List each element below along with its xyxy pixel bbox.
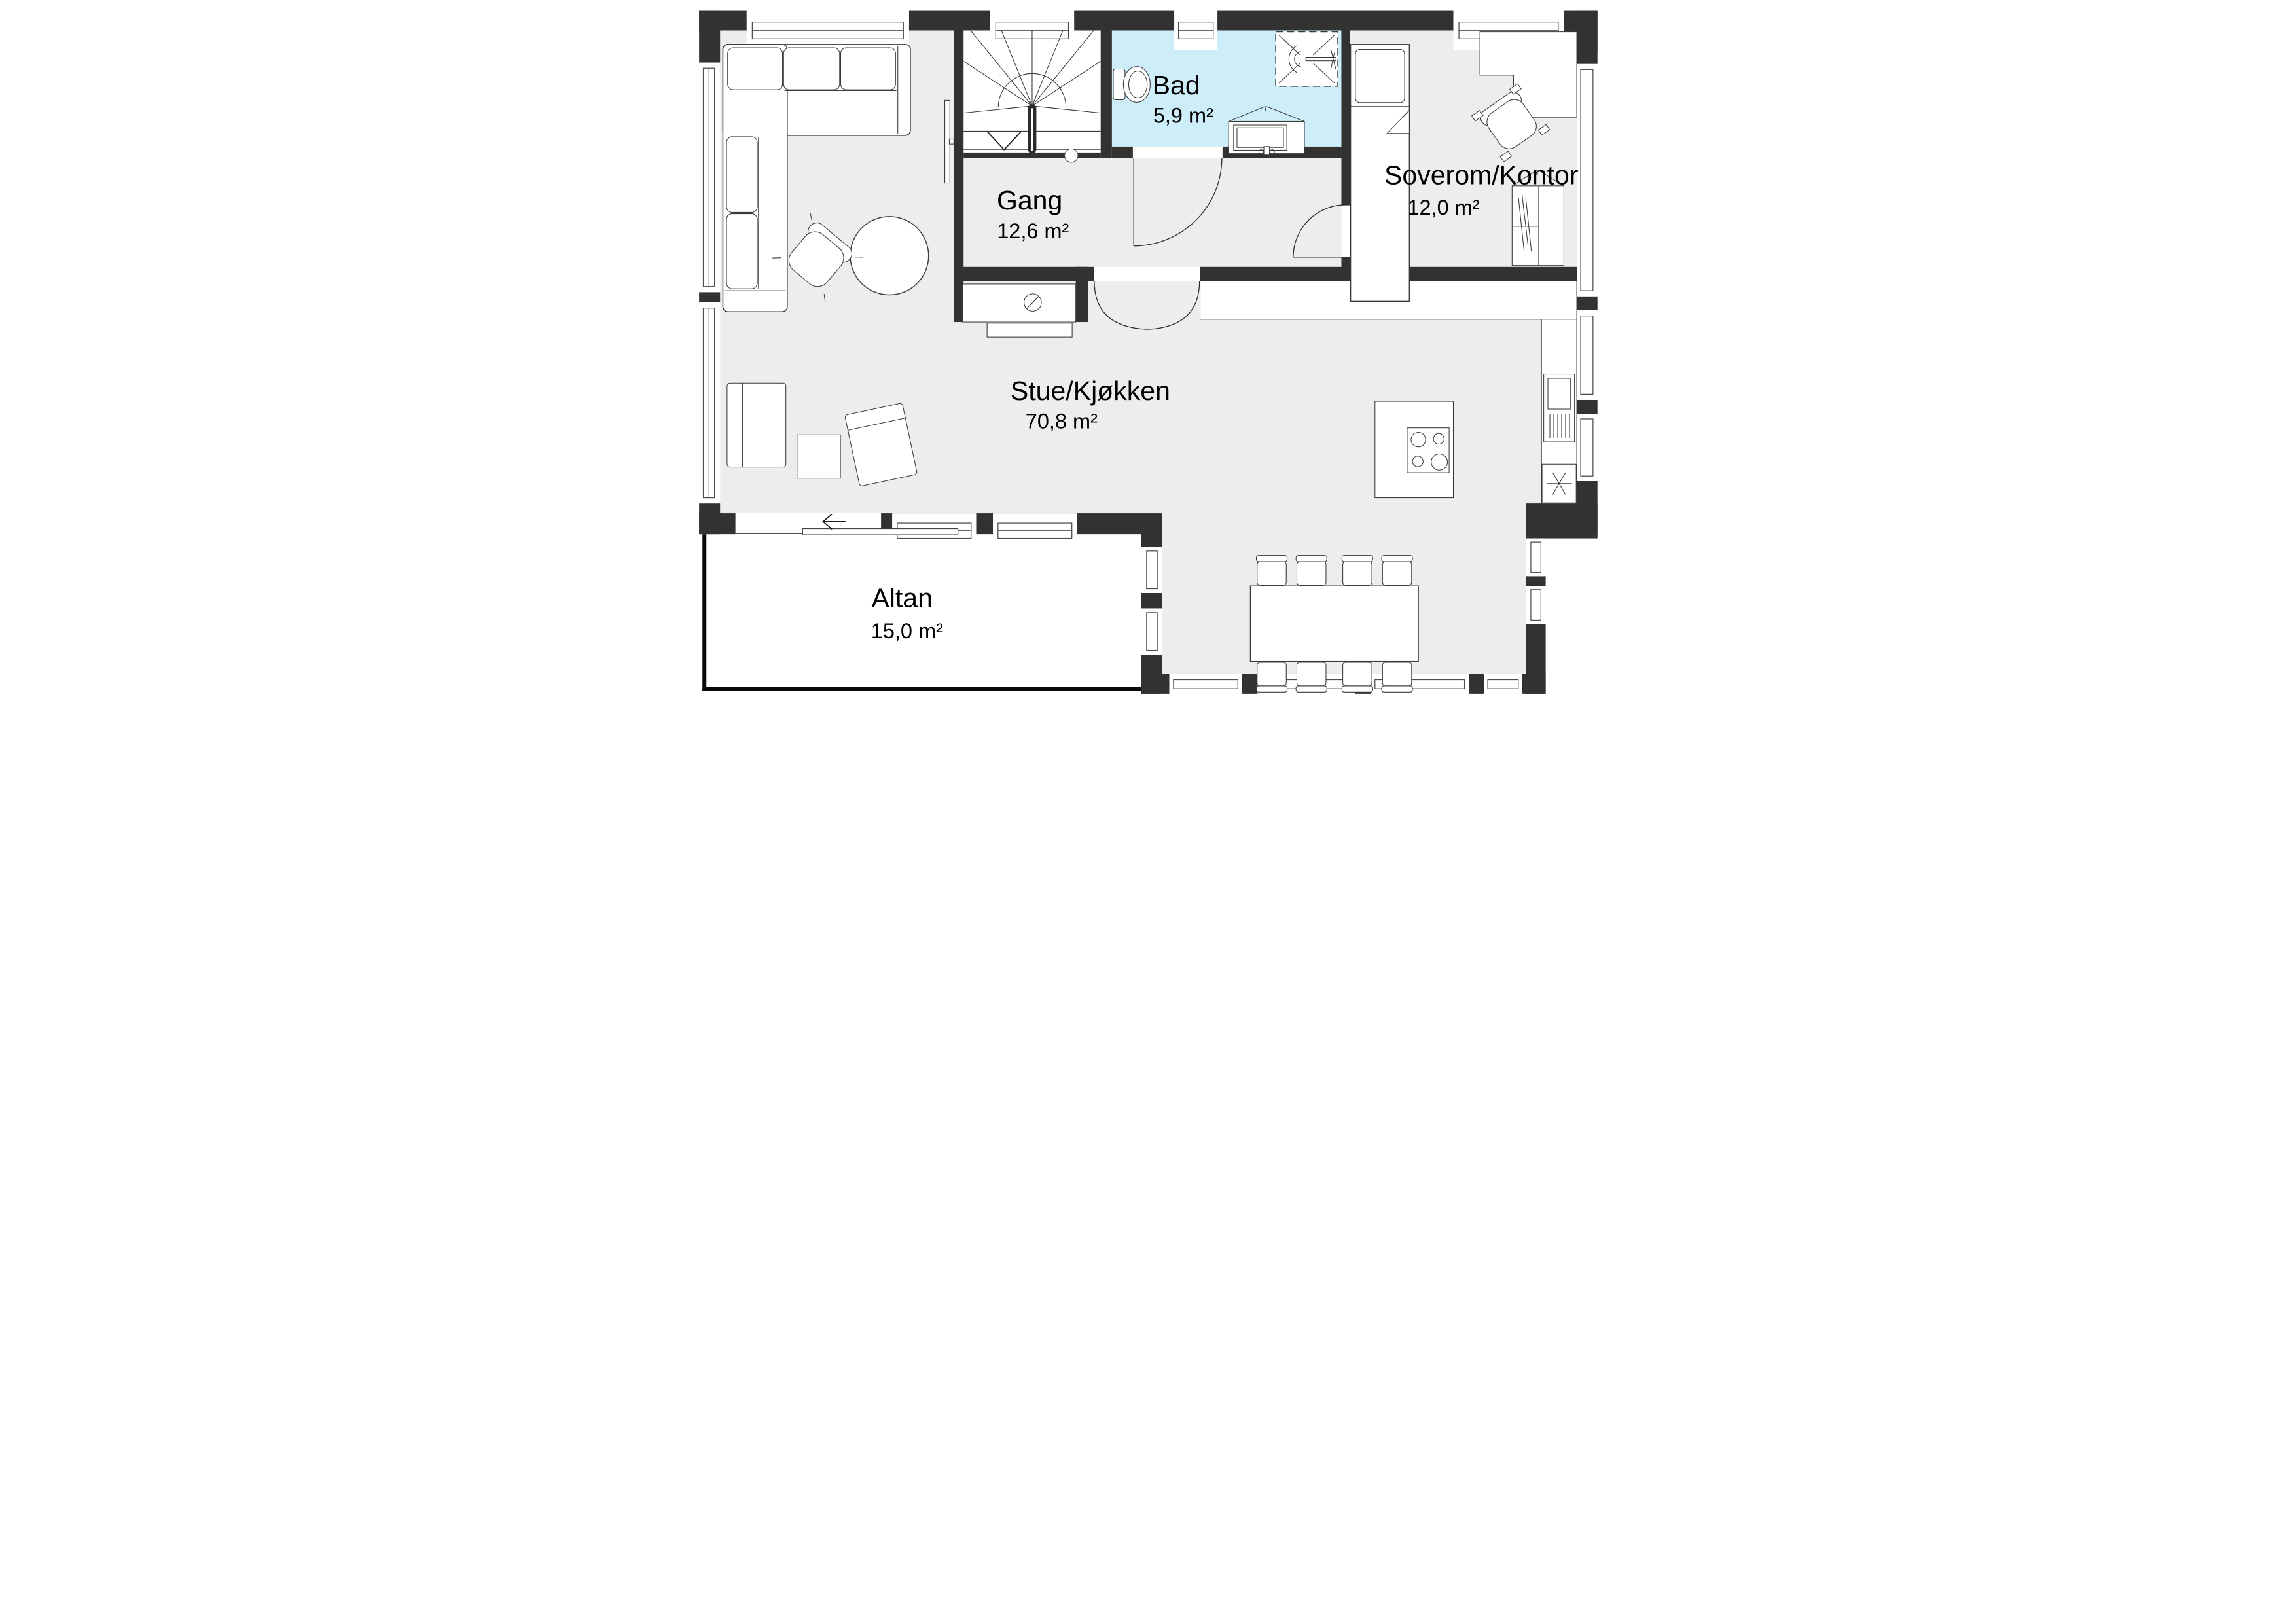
sliding-door-panel: [802, 529, 958, 535]
cooktop-icon: [1407, 428, 1449, 473]
room-label-bad: Bad: [1153, 70, 1200, 100]
window-dining-south-4: [1484, 676, 1522, 693]
window-left-upper: [699, 63, 720, 293]
lounge-chair-left: [727, 383, 786, 467]
fireplace-hearth: [987, 323, 1072, 337]
window-left-lower: [699, 302, 720, 503]
altan-border-bottom: [702, 687, 1141, 691]
wall-stair-right: [1101, 30, 1112, 158]
wall-bath-bedroom: [1341, 30, 1350, 205]
shower: [1276, 32, 1338, 86]
window-dining-west-1: [1143, 547, 1161, 593]
kitchen-island: [1375, 401, 1454, 498]
freezer-icon: [1542, 464, 1576, 503]
coffee-table: [850, 217, 929, 295]
room-area-soverom: 12,0 m²: [1407, 196, 1479, 219]
window-dining-south-1: [1169, 676, 1242, 693]
room-area-altan: 15,0 m²: [871, 619, 943, 643]
dining-table: [1250, 586, 1418, 661]
window-right-kitchen-lower: [1577, 414, 1598, 481]
wall-gang-bottom-left: [954, 267, 1094, 281]
wall-fireplace-jamb: [1076, 267, 1088, 322]
window-right-kitchen-upper: [1577, 310, 1598, 400]
window-dining-west-2: [1143, 608, 1161, 655]
window-top-bathroom: [1174, 11, 1217, 50]
wall-corner-kitchen: [1526, 503, 1598, 538]
toilet: [1113, 67, 1150, 103]
floor-plan-page: Bad 5,9 m² Gang 12,6 m² Soverom/Kontor 1…: [657, 5, 1639, 700]
shower-arm: [1306, 58, 1336, 61]
altan-border-left: [702, 534, 706, 691]
room-area-gang: 12,6 m²: [997, 219, 1069, 243]
room-label-altan: Altan: [871, 583, 933, 613]
side-table: [797, 435, 840, 478]
stair-newel-post: [1065, 149, 1079, 162]
room-label-gang: Gang: [997, 185, 1062, 215]
oven-appliance: [1544, 374, 1575, 442]
room-label-soverom: Soverom/Kontor: [1384, 160, 1578, 190]
room-area-stue: 70,8 m²: [1026, 410, 1098, 433]
window-bottom-living-2: [993, 514, 1077, 547]
room-label-stue: Stue/Kjøkken: [1011, 376, 1170, 406]
wall-stair-bottom: [963, 153, 1101, 158]
window-dining-east-2: [1528, 586, 1545, 624]
window-right-bedroom: [1577, 64, 1598, 297]
wall-bath-bottom-left: [1112, 147, 1133, 158]
floor-plan-drawing: Bad 5,9 m² Gang 12,6 m² Soverom/Kontor 1…: [657, 5, 1639, 700]
window-dining-east-1: [1528, 539, 1545, 577]
room-area-bad: 5,9 m²: [1153, 104, 1213, 128]
